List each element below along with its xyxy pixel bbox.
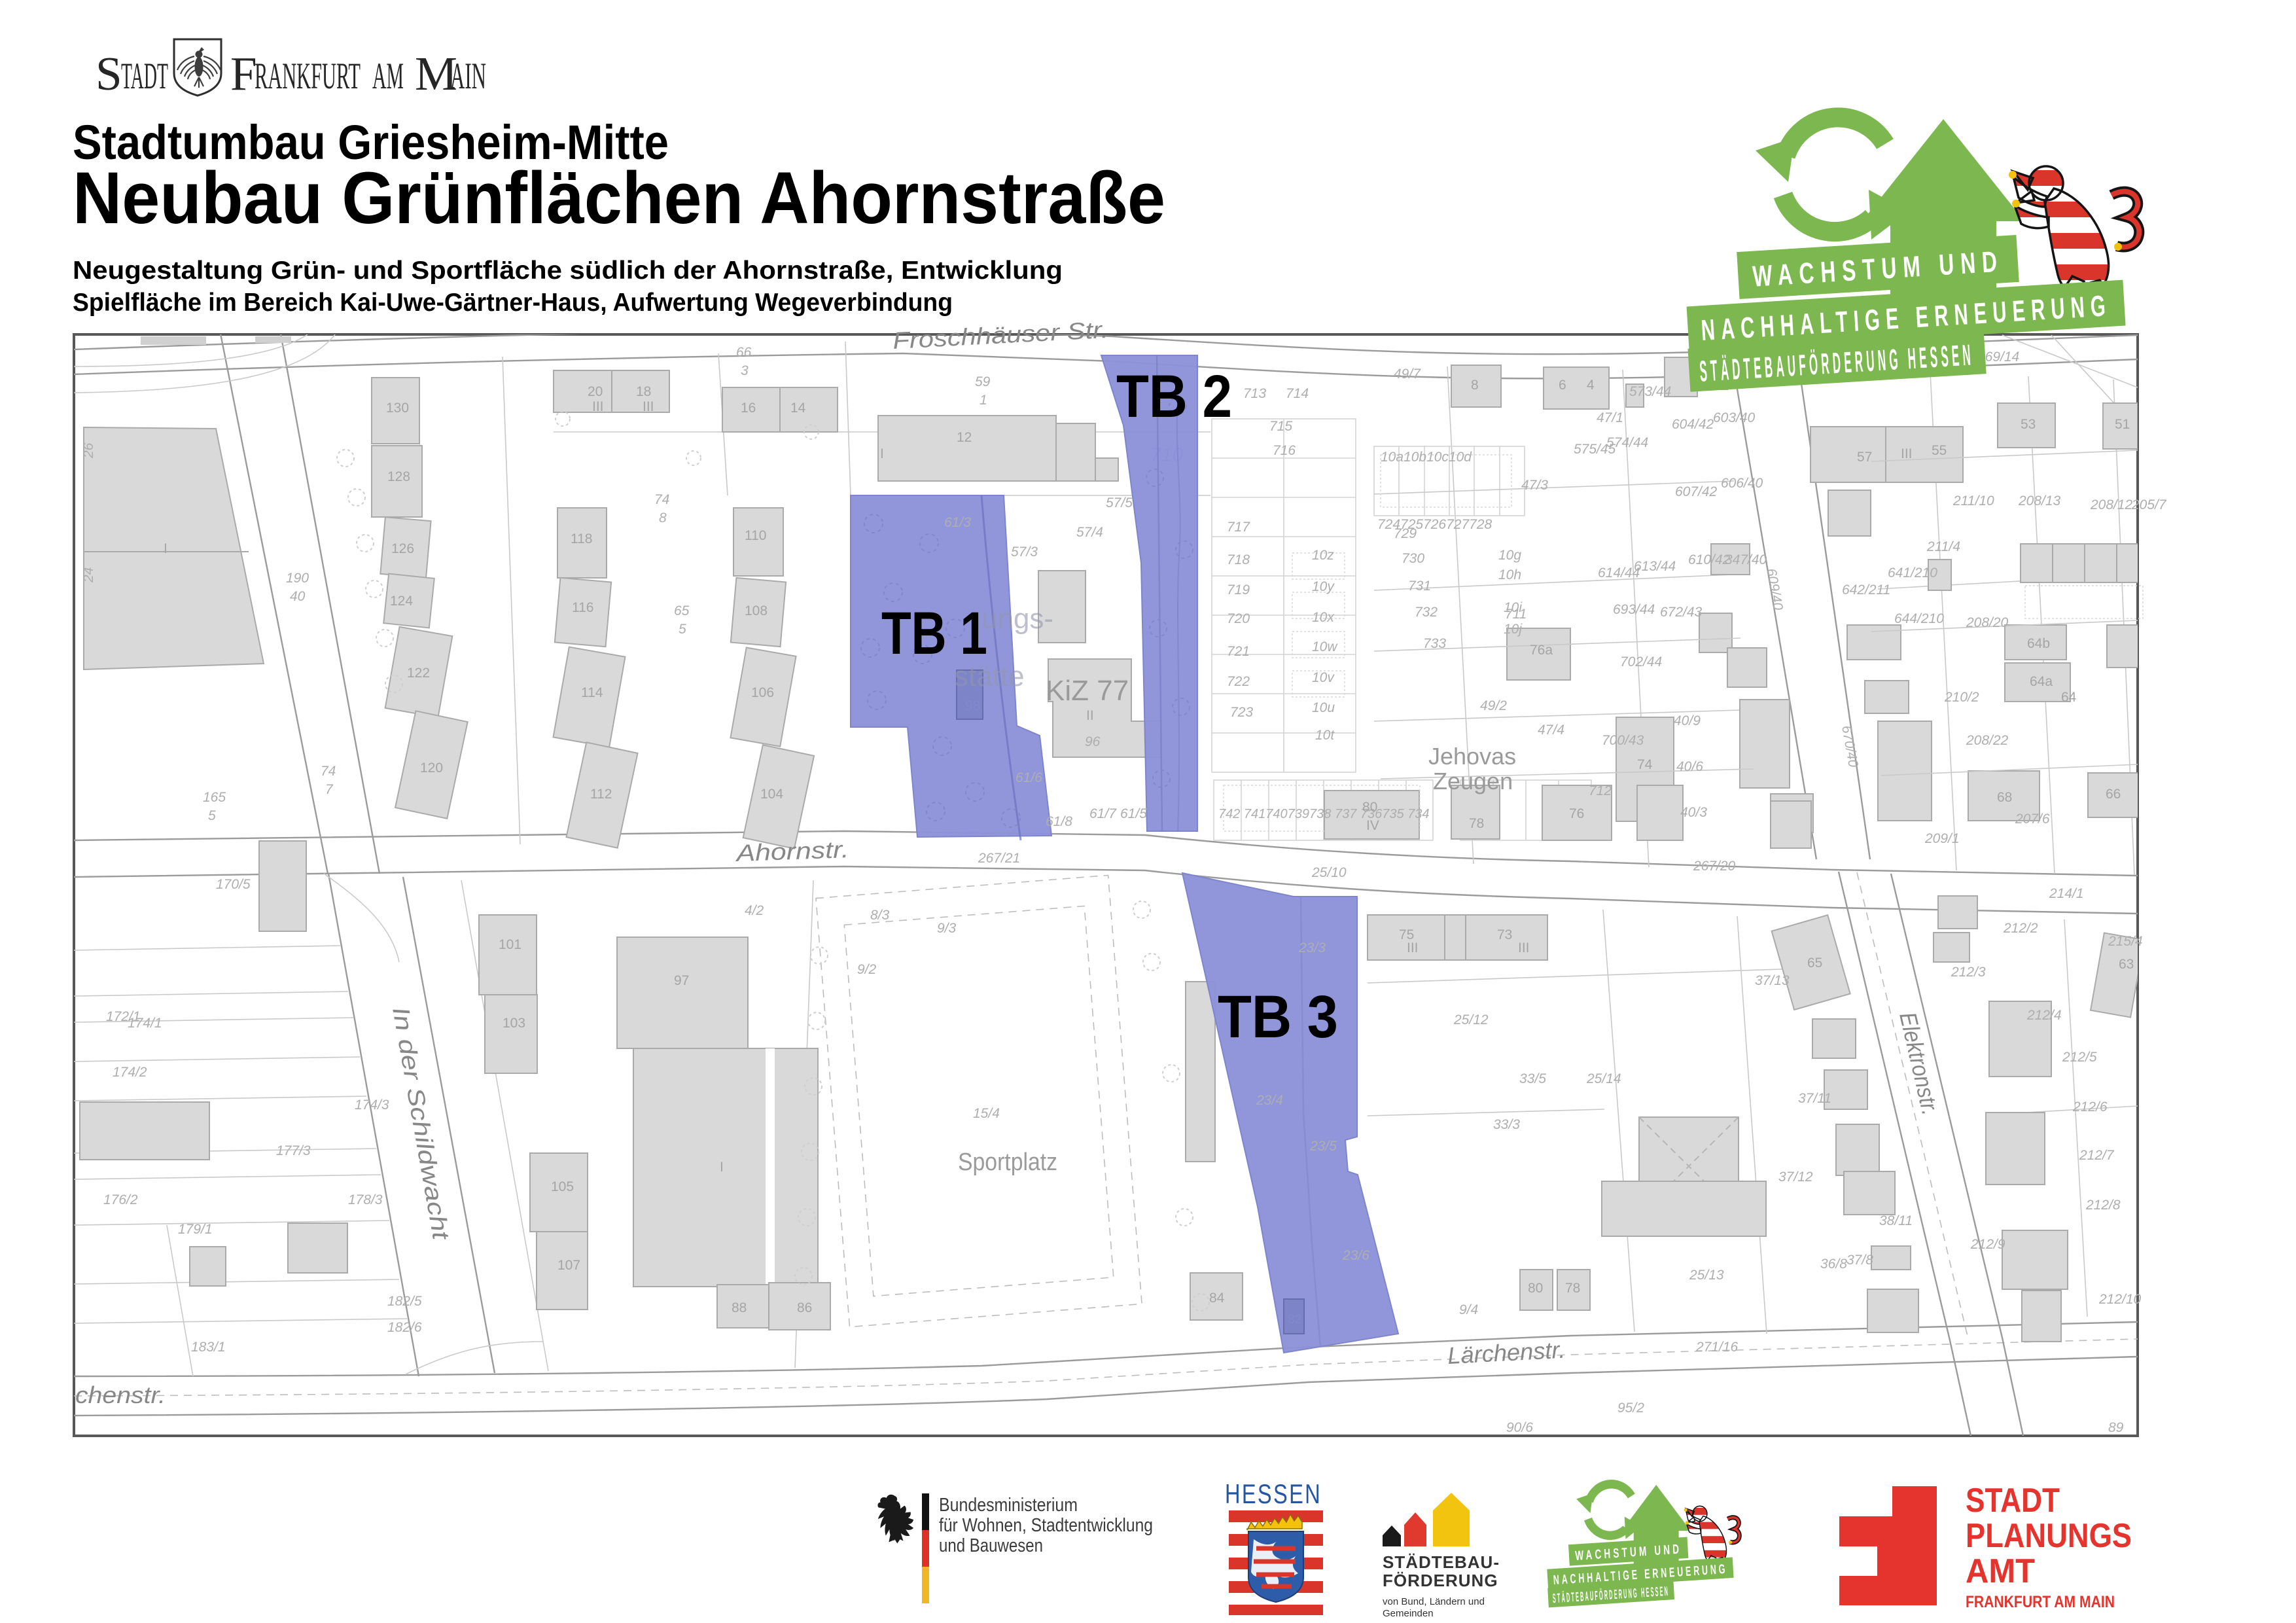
svg-text:FRANKFURT AM MAIN: FRANKFURT AM MAIN xyxy=(1966,1593,2115,1611)
svg-text:38/11: 38/11 xyxy=(1879,1213,1913,1228)
svg-text:und Bauwesen: und Bauwesen xyxy=(939,1535,1043,1556)
svg-text:212/7: 212/7 xyxy=(2079,1148,2115,1163)
svg-text:207/6: 207/6 xyxy=(2015,811,2050,827)
svg-text:37/8: 37/8 xyxy=(1846,1253,1873,1268)
svg-text:26: 26 xyxy=(81,442,96,459)
svg-text:33/5: 33/5 xyxy=(1519,1071,1546,1086)
svg-text:23/6: 23/6 xyxy=(1342,1248,1369,1263)
svg-text:23/5: 23/5 xyxy=(1309,1139,1337,1154)
svg-text:III: III xyxy=(643,399,654,414)
svg-text:III: III xyxy=(1518,940,1530,955)
svg-text:208/22: 208/22 xyxy=(1966,733,2009,748)
svg-text:4/2: 4/2 xyxy=(745,903,764,918)
svg-text:713: 713 xyxy=(1243,386,1266,401)
svg-text:116: 116 xyxy=(572,600,593,615)
svg-text:10y: 10y xyxy=(1312,579,1335,594)
svg-text:25/12: 25/12 xyxy=(1453,1012,1489,1027)
svg-text:103: 103 xyxy=(503,1016,525,1031)
svg-text:TADT: TADT xyxy=(121,56,168,97)
svg-text:110: 110 xyxy=(745,528,766,543)
svg-text:82: 82 xyxy=(1288,1313,1301,1327)
svg-text:9/4: 9/4 xyxy=(1459,1302,1478,1317)
svg-text:40/6: 40/6 xyxy=(1676,759,1703,774)
svg-text:Ahornstr.: Ahornstr. xyxy=(734,836,849,866)
svg-text:HESSEN: HESSEN xyxy=(1225,1478,1322,1509)
svg-text:10v: 10v xyxy=(1312,670,1335,685)
svg-text:729: 729 xyxy=(1394,526,1417,541)
svg-text:712: 712 xyxy=(1589,783,1612,798)
svg-text:212/3: 212/3 xyxy=(1951,965,1986,980)
svg-text:86: 86 xyxy=(797,1300,812,1315)
svg-text:10h: 10h xyxy=(1498,567,1521,582)
svg-text:15/4: 15/4 xyxy=(973,1106,1000,1121)
svg-text:10z: 10z xyxy=(1312,548,1334,563)
svg-text:33/3: 33/3 xyxy=(1493,1117,1520,1132)
svg-text:672/43: 672/43 xyxy=(1660,605,1703,620)
svg-text:3: 3 xyxy=(741,363,749,378)
svg-text:12: 12 xyxy=(957,430,972,445)
svg-text:97: 97 xyxy=(674,973,689,988)
svg-text:120: 120 xyxy=(420,760,443,776)
svg-text:78: 78 xyxy=(1469,816,1484,831)
svg-text:603/40: 603/40 xyxy=(1713,410,1756,425)
svg-text:Bundesministerium: Bundesministerium xyxy=(939,1495,1078,1516)
svg-text:642/211: 642/211 xyxy=(1842,582,1890,597)
svg-text:107: 107 xyxy=(557,1258,580,1273)
svg-text:182/5: 182/5 xyxy=(387,1294,422,1309)
svg-text:64b: 64b xyxy=(2027,636,2050,651)
svg-text:702/44: 702/44 xyxy=(1620,654,1662,669)
svg-text:TB 1: TB 1 xyxy=(881,600,987,667)
svg-text:641/210: 641/210 xyxy=(1888,565,1937,580)
svg-text:23/3: 23/3 xyxy=(1298,940,1326,955)
svg-text:74: 74 xyxy=(1637,757,1653,772)
svg-text:170/5: 170/5 xyxy=(216,877,251,892)
svg-text:88: 88 xyxy=(732,1300,747,1315)
svg-text:174/2: 174/2 xyxy=(113,1065,147,1080)
svg-text:chenstr.: chenstr. xyxy=(75,1382,166,1408)
svg-text:AM: AM xyxy=(372,56,404,97)
svg-text:190: 190 xyxy=(286,571,309,586)
svg-text:177/3: 177/3 xyxy=(276,1143,311,1158)
svg-text:9/2: 9/2 xyxy=(857,962,877,977)
svg-text:1: 1 xyxy=(980,393,987,408)
svg-text:128: 128 xyxy=(387,469,410,484)
svg-text:212/5: 212/5 xyxy=(2062,1050,2097,1065)
svg-text:122: 122 xyxy=(407,666,430,681)
svg-text:TB 2: TB 2 xyxy=(1116,363,1232,430)
svg-text:209/1: 209/1 xyxy=(1924,831,1960,846)
svg-text:II: II xyxy=(1086,708,1094,723)
svg-text:211/10: 211/10 xyxy=(1952,493,1994,508)
svg-text:208/20: 208/20 xyxy=(1966,615,2009,630)
svg-text:66: 66 xyxy=(2106,787,2121,802)
svg-text:Zeugen: Zeugen xyxy=(1433,768,1513,794)
svg-text:57/4: 57/4 xyxy=(1076,525,1103,540)
svg-text:719: 719 xyxy=(1227,582,1250,597)
svg-text:78: 78 xyxy=(1565,1281,1580,1296)
svg-text:108: 108 xyxy=(745,603,768,618)
svg-text:84: 84 xyxy=(1209,1291,1225,1306)
svg-text:Neubau Grünflächen Ahornstraße: Neubau Grünflächen Ahornstraße xyxy=(73,157,1165,239)
svg-text:55: 55 xyxy=(1932,443,1947,458)
svg-text:47/4: 47/4 xyxy=(1538,722,1564,738)
svg-text:130: 130 xyxy=(386,401,409,416)
svg-text:613/44: 613/44 xyxy=(1634,559,1676,574)
svg-text:76: 76 xyxy=(1569,806,1584,821)
svg-text:114: 114 xyxy=(581,685,603,700)
svg-text:700/43: 700/43 xyxy=(1602,733,1644,748)
svg-text:FÖRDERUNG: FÖRDERUNG xyxy=(1383,1571,1498,1590)
svg-text:722: 722 xyxy=(1227,674,1250,689)
svg-text:61/5: 61/5 xyxy=(1120,806,1147,821)
svg-text:212/2: 212/2 xyxy=(2003,921,2038,936)
svg-text:101: 101 xyxy=(499,937,521,952)
svg-text:64a: 64a xyxy=(2030,674,2053,689)
svg-text:10u: 10u xyxy=(1312,700,1335,715)
svg-text:14: 14 xyxy=(790,401,806,416)
svg-text:I: I xyxy=(164,541,168,556)
svg-text:57/3: 57/3 xyxy=(1011,544,1038,560)
svg-text:723: 723 xyxy=(1230,705,1253,720)
svg-text:80: 80 xyxy=(1362,800,1377,815)
svg-text:76a: 76a xyxy=(1530,643,1553,658)
svg-text:721: 721 xyxy=(1227,644,1250,659)
svg-text:S: S xyxy=(96,47,122,100)
svg-text:730: 730 xyxy=(1402,551,1424,566)
svg-text:742 741740739738 737 736735 73: 742 741740739738 737 736735 734 xyxy=(1218,807,1430,821)
svg-text:16: 16 xyxy=(741,401,756,416)
svg-text:STADT: STADT xyxy=(1966,1482,2060,1520)
svg-text:10x: 10x xyxy=(1312,610,1335,625)
svg-text:20: 20 xyxy=(588,384,603,399)
svg-text:182/6: 182/6 xyxy=(387,1320,422,1335)
svg-text:118: 118 xyxy=(571,531,592,546)
svg-text:Neugestaltung Grün- und Sportf: Neugestaltung Grün- und Sportfläche südl… xyxy=(73,257,1063,285)
svg-text:210/2: 210/2 xyxy=(1944,690,1979,705)
svg-text:178/3: 178/3 xyxy=(348,1192,383,1207)
svg-text:40/9: 40/9 xyxy=(1674,713,1701,728)
svg-text:208/13: 208/13 xyxy=(2018,493,2061,508)
svg-text:61/7: 61/7 xyxy=(1089,806,1117,821)
svg-text:212/9: 212/9 xyxy=(1970,1237,2005,1252)
svg-text:I: I xyxy=(880,446,884,461)
svg-text:63: 63 xyxy=(2119,957,2134,972)
svg-text:73: 73 xyxy=(1497,927,1512,942)
svg-text:10t: 10t xyxy=(1315,728,1335,743)
svg-text:9/3: 9/3 xyxy=(937,921,957,936)
svg-text:74: 74 xyxy=(321,764,336,779)
svg-text:215/4: 215/4 xyxy=(2108,934,2143,949)
svg-text:66: 66 xyxy=(736,345,752,360)
svg-text:25/13: 25/13 xyxy=(1689,1268,1724,1283)
svg-text:AMT: AMT xyxy=(1966,1552,2035,1590)
svg-text:126: 126 xyxy=(391,541,414,556)
svg-text:Spielfläche im Bereich Kai-Uwe: Spielfläche im Bereich Kai-Uwe-Gärtner-H… xyxy=(73,289,953,317)
svg-text:89: 89 xyxy=(2108,1420,2124,1435)
svg-text:36/8: 36/8 xyxy=(1820,1257,1847,1272)
svg-text:717: 717 xyxy=(1227,520,1250,535)
svg-text:57/5: 57/5 xyxy=(1106,495,1133,510)
svg-text:105: 105 xyxy=(551,1179,574,1194)
svg-text:172/1: 172/1 xyxy=(106,1009,141,1024)
svg-text:37/11: 37/11 xyxy=(1798,1091,1831,1106)
svg-text:80: 80 xyxy=(1528,1281,1543,1296)
svg-text:267/21: 267/21 xyxy=(978,851,1020,866)
svg-text:112: 112 xyxy=(590,787,612,802)
svg-text:6: 6 xyxy=(1559,378,1566,393)
svg-text:174/3: 174/3 xyxy=(355,1097,389,1113)
svg-text:176/2: 176/2 xyxy=(103,1192,138,1207)
svg-text:65: 65 xyxy=(1807,955,1822,971)
svg-text:8/3: 8/3 xyxy=(870,908,890,923)
svg-text:271/16: 271/16 xyxy=(1695,1340,1739,1355)
svg-text:stätte: stätte xyxy=(954,660,1025,692)
svg-text:64: 64 xyxy=(2061,690,2077,705)
svg-text:7: 7 xyxy=(325,782,334,797)
svg-text:8: 8 xyxy=(1471,378,1479,393)
svg-text:214/1: 214/1 xyxy=(2049,886,2084,901)
svg-text:25/14: 25/14 xyxy=(1586,1071,1621,1086)
svg-text:607/42: 607/42 xyxy=(1675,484,1718,499)
svg-text:61/8: 61/8 xyxy=(1046,814,1072,829)
svg-text:37/13: 37/13 xyxy=(1755,973,1790,988)
svg-text:575/45: 575/45 xyxy=(1574,442,1616,457)
svg-text:96: 96 xyxy=(1085,734,1101,749)
svg-text:F: F xyxy=(230,47,257,100)
svg-text:715: 715 xyxy=(1269,419,1292,434)
svg-text:65: 65 xyxy=(674,603,690,618)
svg-text:PLANUNGS: PLANUNGS xyxy=(1966,1517,2132,1555)
svg-text:644/210: 644/210 xyxy=(1894,611,1944,626)
svg-text:III: III xyxy=(592,399,604,414)
svg-text:10a10b10c10d: 10a10b10c10d xyxy=(1381,450,1472,465)
svg-text:61/6: 61/6 xyxy=(1016,770,1042,785)
svg-text:347/40: 347/40 xyxy=(1725,552,1767,567)
svg-text:III: III xyxy=(1901,446,1913,461)
svg-text:212/10: 212/10 xyxy=(2098,1292,2142,1307)
svg-text:40: 40 xyxy=(290,589,306,604)
svg-text:RANKFURT: RANKFURT xyxy=(255,56,361,97)
svg-text:267/20: 267/20 xyxy=(1693,859,1736,874)
svg-text:104: 104 xyxy=(760,787,783,802)
svg-text:205/7: 205/7 xyxy=(2131,497,2167,512)
svg-text:10w: 10w xyxy=(1312,639,1338,654)
svg-text:212/4: 212/4 xyxy=(2026,1008,2062,1023)
svg-text:AIN: AIN xyxy=(450,56,486,97)
svg-text:für Wohnen, Stadtentwicklung: für Wohnen, Stadtentwicklung xyxy=(939,1515,1153,1536)
svg-text:610/42: 610/42 xyxy=(1688,552,1731,567)
svg-text:718: 718 xyxy=(1227,552,1250,567)
svg-text:716: 716 xyxy=(1273,443,1296,458)
svg-text:95/2: 95/2 xyxy=(1617,1400,1644,1416)
svg-text:10j: 10j xyxy=(1504,622,1523,637)
svg-text:8: 8 xyxy=(659,510,667,526)
svg-text:18: 18 xyxy=(636,384,651,399)
svg-text:573/44: 573/44 xyxy=(1629,384,1671,399)
svg-text:208/12: 208/12 xyxy=(2090,497,2133,512)
svg-text:47/3: 47/3 xyxy=(1521,478,1548,493)
svg-text:106: 106 xyxy=(751,685,774,700)
svg-text:24: 24 xyxy=(81,567,96,583)
svg-text:733: 733 xyxy=(1423,636,1446,651)
svg-text:59: 59 xyxy=(975,374,991,389)
svg-text:98: 98 xyxy=(965,698,980,713)
svg-text:von Bund, Ländern und: von Bund, Ländern und xyxy=(1383,1596,1485,1607)
svg-text:ungs-: ungs- xyxy=(981,603,1053,635)
svg-text:IV: IV xyxy=(1366,818,1379,833)
svg-text:23/4: 23/4 xyxy=(1256,1093,1283,1108)
svg-text:124: 124 xyxy=(390,594,413,609)
svg-text:STÄDTEBAU-: STÄDTEBAU- xyxy=(1383,1552,1500,1572)
svg-text:4: 4 xyxy=(1587,378,1595,393)
svg-text:5: 5 xyxy=(679,622,686,637)
svg-text:37/12: 37/12 xyxy=(1778,1169,1813,1185)
svg-text:614/44: 614/44 xyxy=(1598,565,1640,580)
svg-text:714: 714 xyxy=(1286,386,1309,401)
svg-text:183/1: 183/1 xyxy=(191,1340,226,1355)
svg-text:53: 53 xyxy=(2021,417,2036,432)
svg-text:51: 51 xyxy=(2115,417,2130,432)
svg-text:III: III xyxy=(1407,940,1419,955)
svg-text:606/40: 606/40 xyxy=(1721,476,1763,491)
svg-text:731: 731 xyxy=(1408,579,1431,594)
svg-text:74: 74 xyxy=(654,492,669,507)
svg-text:57: 57 xyxy=(1857,450,1872,465)
svg-text:10g: 10g xyxy=(1498,548,1521,563)
svg-text:179/1: 179/1 xyxy=(178,1222,213,1237)
svg-text:49/7: 49/7 xyxy=(1394,366,1421,382)
svg-text:720: 720 xyxy=(1227,611,1250,626)
svg-text:Sportplatz: Sportplatz xyxy=(958,1149,1057,1176)
svg-text:90/6: 90/6 xyxy=(1506,1420,1533,1435)
svg-text:47/1: 47/1 xyxy=(1597,410,1623,425)
svg-text:49/2: 49/2 xyxy=(1480,698,1507,713)
svg-text:68: 68 xyxy=(1997,790,2012,805)
svg-text:I: I xyxy=(720,1160,724,1175)
svg-text:732: 732 xyxy=(1415,605,1438,620)
svg-text:211/4: 211/4 xyxy=(1926,539,1960,554)
svg-text:Jehovas: Jehovas xyxy=(1428,743,1516,770)
svg-text:711: 711 xyxy=(1505,607,1527,622)
svg-text:Gemeinden: Gemeinden xyxy=(1383,1608,1434,1619)
svg-text:40/3: 40/3 xyxy=(1680,805,1707,820)
svg-text:5: 5 xyxy=(208,808,216,823)
svg-text:25/10: 25/10 xyxy=(1311,865,1347,880)
svg-text:61/3: 61/3 xyxy=(944,515,971,530)
svg-text:212/6: 212/6 xyxy=(2072,1099,2108,1115)
svg-text:212/8: 212/8 xyxy=(2085,1198,2121,1213)
svg-text:165: 165 xyxy=(203,790,226,805)
svg-text:604/42: 604/42 xyxy=(1672,417,1714,432)
svg-text:TB 3: TB 3 xyxy=(1218,984,1338,1050)
svg-text:693/44: 693/44 xyxy=(1613,602,1655,617)
svg-text:KiZ 77: KiZ 77 xyxy=(1046,675,1129,707)
